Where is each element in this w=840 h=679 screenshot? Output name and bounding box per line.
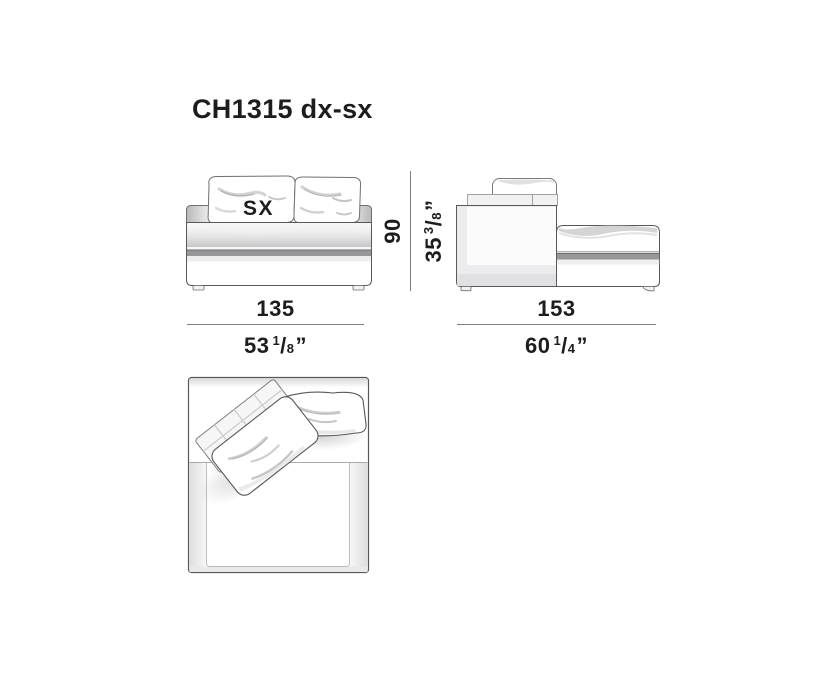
front-cushion-label: SX [243,197,274,220]
side-top-rail [468,195,558,206]
height-cm-label: 90 [381,171,405,291]
front-seat-base [187,223,372,286]
side-foot-right [643,287,654,291]
side-view [453,174,667,292]
height-dimension: 90 353/8” [381,171,447,291]
front-foot-left [193,286,204,291]
front-width-dimension-line [187,324,364,325]
side-foot-left [461,287,471,291]
height-inch-label: 353/8” [416,171,442,291]
page-canvas: CH1315 dx-sx [0,0,840,679]
front-width-inch-label: 531/8” [187,327,364,362]
front-width-dimension: 135 531/8” [187,297,364,362]
front-view: SX [183,170,375,292]
depth-dimension: 153 601/4” [457,297,656,362]
height-dimension-line [410,171,411,291]
front-foot-right [353,286,364,291]
side-arm-block [457,206,557,287]
front-back-cushion-right [294,177,361,223]
depth-cm-label: 153 [457,297,656,321]
depth-inch-label: 601/4” [457,327,656,362]
side-chaise [557,226,660,287]
depth-dimension-line [457,324,656,325]
front-width-cm-label: 135 [187,297,364,321]
top-view [185,374,371,576]
drawing-title: CH1315 dx-sx [192,94,373,125]
